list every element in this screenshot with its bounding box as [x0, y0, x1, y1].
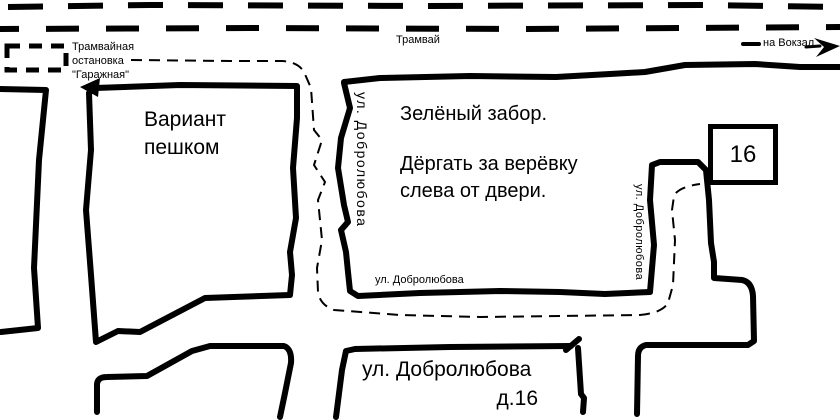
tram-stop-label-line1: Трамвайная [72, 40, 134, 54]
lower-left-block-outline [97, 346, 291, 417]
tram-stop-label-line3: "Гаражная" [72, 68, 134, 82]
tram-label: Трамвай [396, 34, 440, 47]
tram-stop-rect [7, 46, 66, 70]
tram-stop-label-line2: остановка [72, 54, 134, 68]
house-16-box: 16 [708, 124, 778, 185]
dest-house-label: д.16 [362, 387, 538, 411]
hand-drawn-map: Трамвайная остановка "Гаражная" Трамвай … [0, 0, 840, 420]
tram-stop-label: Трамвайная остановка "Гаражная" [72, 40, 134, 82]
left-street-line [0, 89, 46, 332]
walk-option-label: Вариант пешком [144, 106, 226, 162]
tram-line-upper [8, 5, 840, 7]
street-label-right-vertical: ул. Добролюбова [633, 184, 645, 280]
street-label-along-block: ул. Добролюбова [375, 274, 464, 287]
dest-block-right-edge [578, 348, 584, 412]
to-vokzal-label: на Вокзал [763, 37, 814, 50]
house-16-number: 16 [730, 141, 757, 169]
tram-line-lower [0, 27, 840, 29]
dest-street-label: ул. Добролюбова [362, 358, 531, 382]
green-fence-line [344, 64, 840, 82]
door-note: Дёргать за верёвку слева от двери. [400, 151, 578, 205]
street-label-left-vertical: ул. Добролюбова [354, 92, 370, 227]
fence-note: Зелёный забор. [400, 101, 547, 128]
